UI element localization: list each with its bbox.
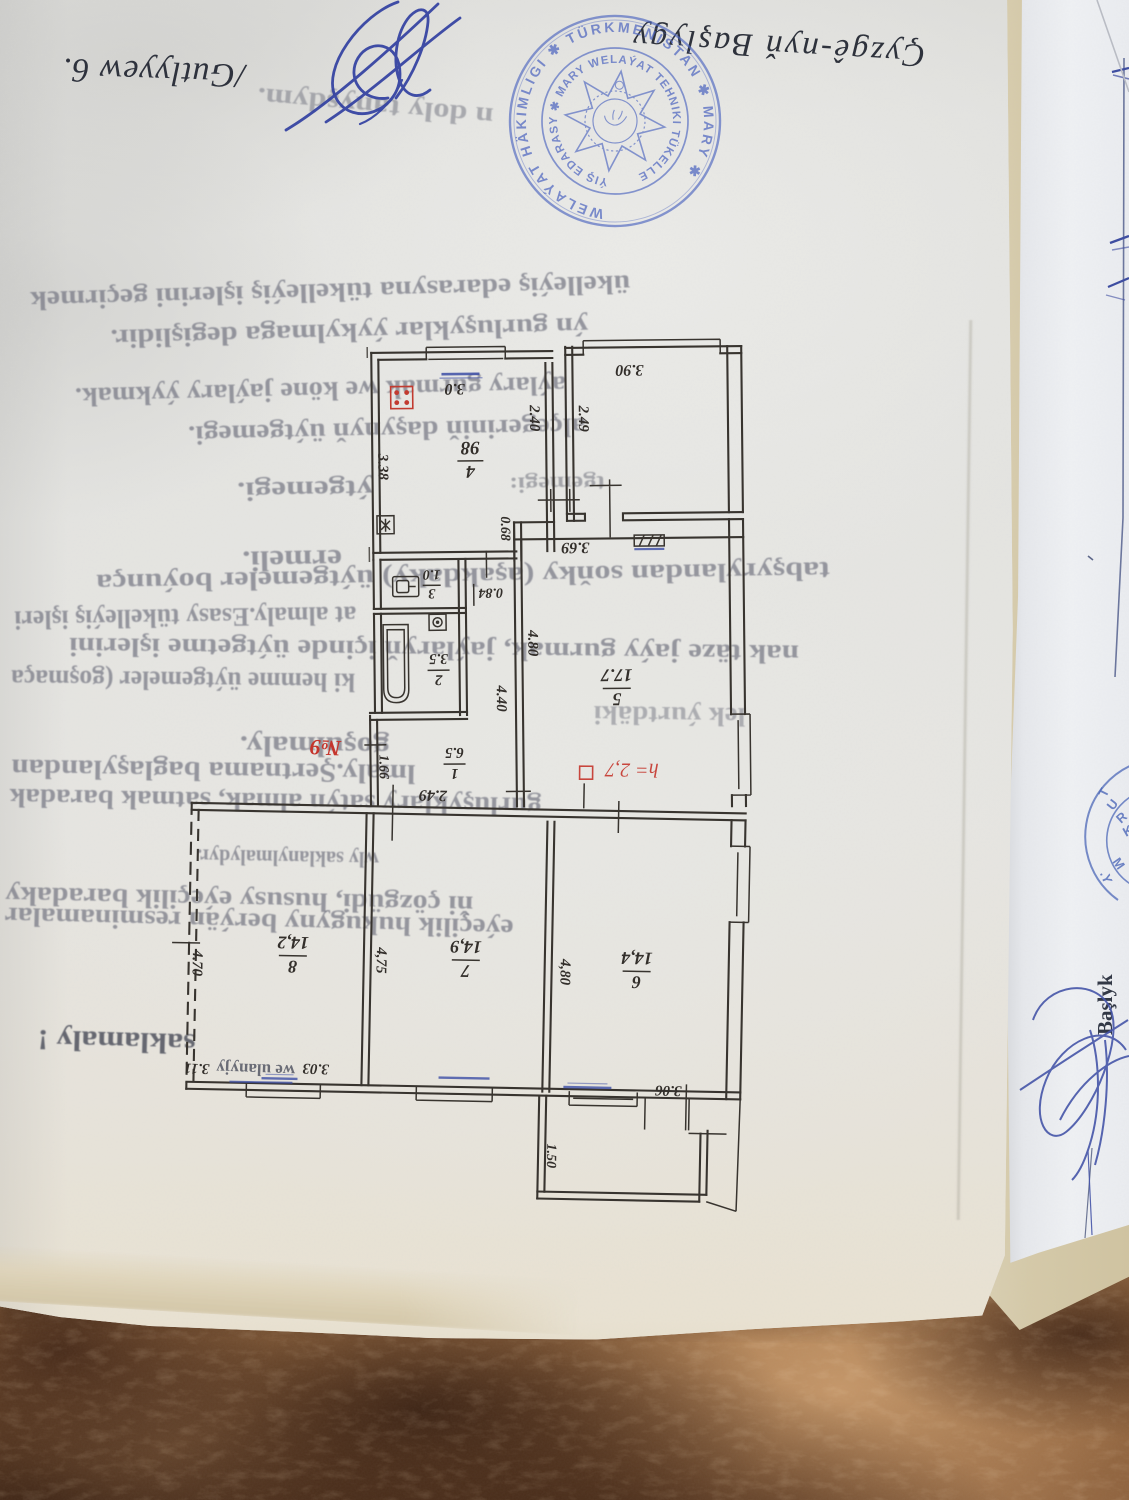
svg-text:4,75: 4,75 xyxy=(373,946,390,974)
svg-text:3: 3 xyxy=(428,585,436,600)
svg-text:98: 98 xyxy=(460,437,480,458)
svg-text:2.49: 2.49 xyxy=(575,404,591,432)
svg-text:2.49: 2.49 xyxy=(419,786,448,804)
svg-text:14,4: 14,4 xyxy=(621,948,653,969)
svg-text:№9: №9 xyxy=(309,735,342,761)
svg-text:1.50: 1.50 xyxy=(543,1143,558,1168)
svg-text:0.84: 0.84 xyxy=(478,585,503,600)
svg-text:3.69: 3.69 xyxy=(561,539,590,556)
svg-text:3.90: 3.90 xyxy=(615,361,644,378)
svg-text:h= 2,7: h= 2,7 xyxy=(604,758,659,780)
svg-text:3.03: 3.03 xyxy=(302,1060,330,1077)
svg-text:3.06: 3.06 xyxy=(654,1082,682,1099)
svg-text:we ulanyjy: we ulanyjy xyxy=(215,1059,295,1081)
svg-text:4.70: 4.70 xyxy=(188,949,205,977)
svg-text:3.11: 3.11 xyxy=(184,1060,211,1077)
svg-text:2.40: 2.40 xyxy=(526,404,542,432)
svg-text:4.40: 4.40 xyxy=(493,684,509,712)
svg-text:14,2: 14,2 xyxy=(277,932,309,953)
svg-text:1.0: 1.0 xyxy=(423,566,441,581)
svg-text:4.80: 4.80 xyxy=(524,629,540,657)
svg-text:17.7: 17.7 xyxy=(600,665,633,685)
svg-text:8: 8 xyxy=(288,957,297,977)
svg-text:7: 7 xyxy=(460,961,470,981)
svg-text:5: 5 xyxy=(612,689,621,709)
svg-text:6: 6 xyxy=(632,972,641,992)
svg-text:6.5: 6.5 xyxy=(444,744,463,760)
svg-text:3.0: 3.0 xyxy=(445,380,466,397)
svg-text:1.66: 1.66 xyxy=(375,754,390,779)
svg-text:4: 4 xyxy=(466,462,476,482)
svg-text:3.38: 3.38 xyxy=(374,453,390,481)
svg-text:14,9: 14,9 xyxy=(450,937,482,958)
svg-text:0.68: 0.68 xyxy=(497,516,512,541)
svg-text:1: 1 xyxy=(451,765,459,781)
svg-text:3.5: 3.5 xyxy=(428,650,448,666)
svg-text:4,80: 4,80 xyxy=(556,958,573,986)
svg-text:2: 2 xyxy=(434,671,443,687)
